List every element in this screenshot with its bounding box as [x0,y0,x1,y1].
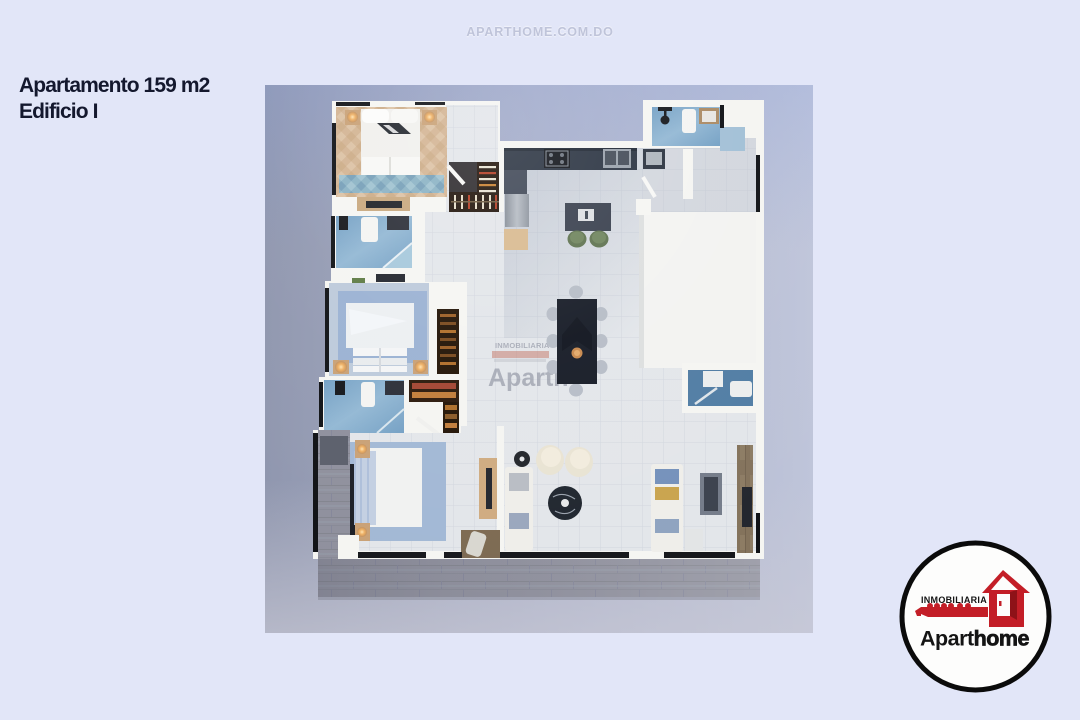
svg-text:INMOBILIARIA: INMOBILIARIA [921,595,987,605]
svg-text:Aparthome: Aparthome [920,627,1030,651]
